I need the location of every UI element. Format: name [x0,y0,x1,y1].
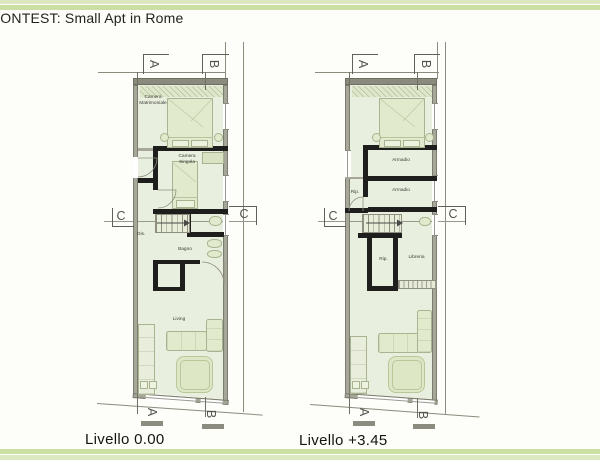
nightstand [214,133,223,142]
ground-line [97,403,263,415]
window [200,399,222,405]
window [432,103,438,130]
sofa [206,319,223,352]
section-marker-b-bottom: B [203,406,219,422]
sofa [166,331,207,351]
wall-segment [153,146,158,190]
site-line [315,72,439,73]
room-label-dis: Dis. [137,232,151,238]
window [146,395,196,403]
double-bed [379,98,425,148]
site-line [437,42,438,79]
site-line [243,42,244,412]
wall-segment [153,260,200,265]
wall-segment [133,78,228,85]
section-marker-b-bottom: B [415,407,431,423]
single-bed [172,161,198,209]
room-label-camera-matrimoniale: Camera Matrimoniale [135,95,171,107]
pillow [384,140,401,147]
wall-segment [345,78,437,85]
marker-tick [349,72,350,90]
section-marker-c-right: C [237,207,251,221]
marker-bracket [112,226,134,227]
wall-segment [368,207,437,212]
section-marker-a-top: A [355,56,371,72]
room-label-rip-top: Rip. [345,190,365,196]
wall-segment [153,287,185,292]
site-line [98,72,226,73]
marker-bar [202,424,224,429]
nightstand [372,133,381,142]
wall-segment [345,177,363,179]
site-line [445,42,446,414]
sofa [417,310,432,353]
bookshelf [398,280,437,289]
marker-bracket [465,206,466,225]
plan-caption-livello-3-45: Livello +3.45 [299,432,388,449]
drawing-overlay [0,0,600,460]
sheet-title: CONTEST: Small Apt in Rome [0,10,183,26]
drawing-sheet: CONTEST: Small Apt in Rome [0,0,600,460]
marker-bracket [143,54,144,74]
door-opening [133,157,138,178]
wardrobe [202,152,224,164]
top-border-stripe-light [0,0,600,4]
section-marker-c-left: C [114,209,128,223]
window [345,150,351,178]
marker-bracket [324,226,346,227]
sofa [378,333,420,353]
ground-line [310,404,480,417]
pillow [191,140,208,147]
double-bed [167,98,213,148]
pillow [176,200,195,208]
stairs [362,214,402,234]
bed-line [380,137,425,138]
marker-bracket [414,54,415,74]
section-marker-a-top: A [146,56,162,72]
wall-segment [223,85,228,402]
top-border-stripe-dark [0,5,600,10]
kitchen-appliance [361,381,369,389]
marker-tick [417,72,418,90]
plan-caption-livello-0: Livello 0.00 [85,431,165,448]
room-label-rip-mid: Rip. [372,257,395,263]
marker-tick [137,394,138,414]
rug [176,356,213,393]
marker-bar [353,421,375,426]
bidet [207,250,222,259]
pillow [403,140,420,147]
wall-segment [393,238,398,291]
stairs [155,214,190,234]
room-label-living: Living [164,317,194,323]
wardrobe-band [352,86,432,97]
bed-line [168,137,213,138]
window [223,175,229,202]
radiator [419,217,431,226]
section-marker-b-top: B [418,56,434,72]
section-marker-a-bottom: A [144,404,160,420]
room-label-bagno: Bagno [172,247,198,253]
rug [388,356,425,393]
kitchen-appliance [149,381,157,389]
wall-segment [367,286,398,291]
wall-segment [367,238,372,291]
toilet [207,239,222,248]
marker-bracket [352,54,353,74]
room-label-camera-singola: Camera Singola [172,154,202,166]
wall-segment [345,208,368,213]
wall-segment [187,232,224,237]
section-marker-a-bottom: A [356,404,372,420]
pillow [172,140,189,147]
wall-segment [138,148,153,151]
marker-bracket [202,54,203,74]
washbasin [209,216,222,226]
bottom-border-stripe-light [0,455,600,460]
marker-tick [349,394,350,414]
section-marker-b-top: B [206,56,222,72]
room-label-libreria: Libreria [400,255,433,261]
section-marker-c-left: C [326,209,340,223]
nightstand [160,133,169,142]
marker-tick [137,72,138,90]
window [358,395,408,403]
room-label-armadio-top: Armadio [378,158,424,164]
window [223,103,229,130]
marker-bracket [256,206,257,225]
bed-line [173,197,198,198]
wall-segment [432,85,437,402]
nightstand [425,133,434,142]
window [412,399,434,405]
section-marker-c-right: C [446,207,460,221]
window [432,214,438,236]
kitchen-appliance [352,381,360,389]
bottom-border-stripe-dark [0,449,600,454]
marker-bar [141,421,163,426]
site-line [225,42,226,78]
marker-bar [413,424,435,429]
wall-segment [368,176,437,181]
wall-segment [138,178,153,183]
room-label-armadio-mid: Armadio [378,188,424,194]
kitchen-appliance [140,381,148,389]
marker-tick [205,72,206,90]
